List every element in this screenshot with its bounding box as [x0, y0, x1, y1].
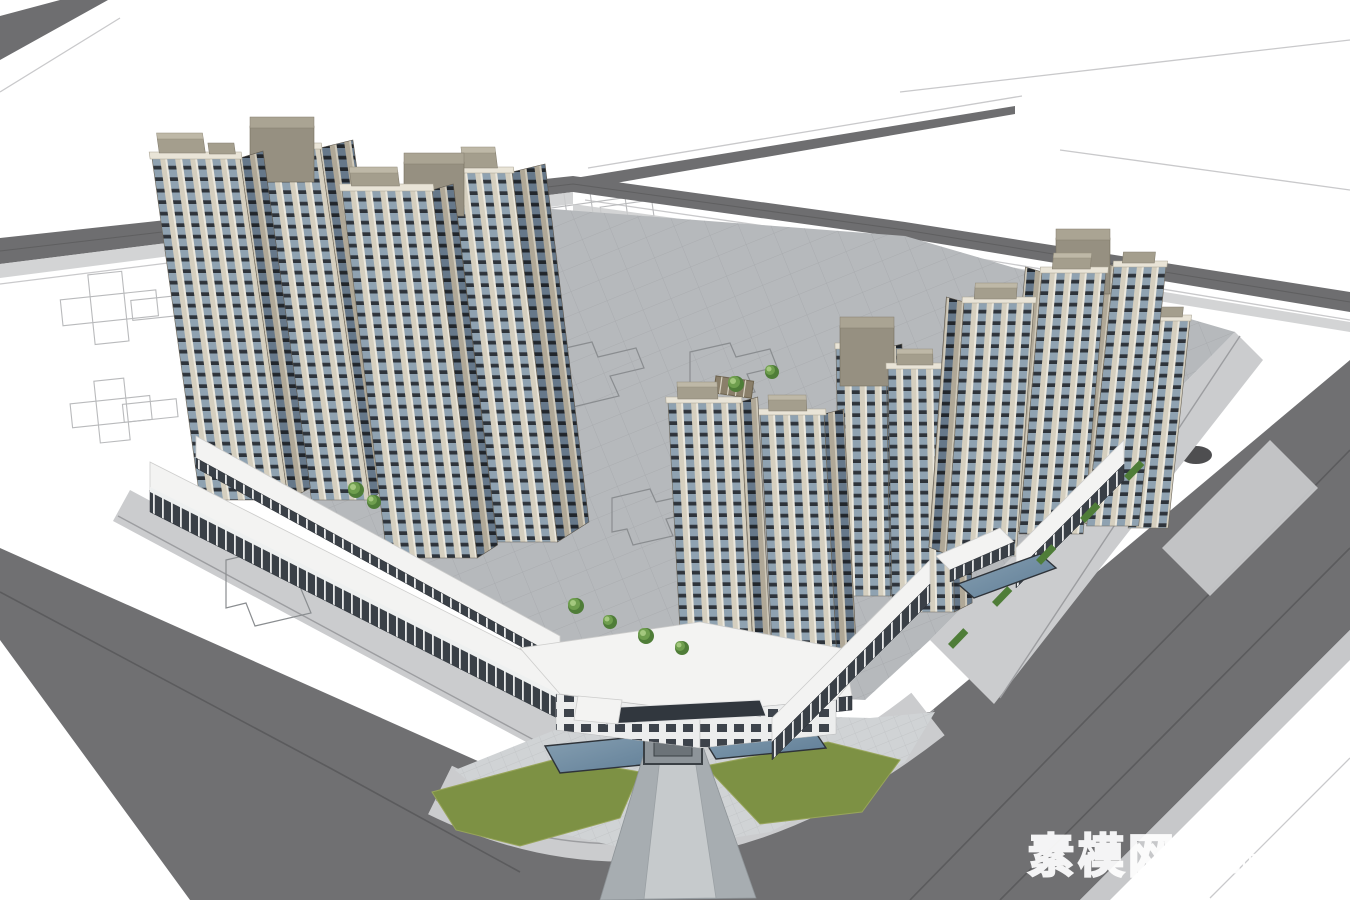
tower-c1 [665, 382, 772, 660]
roof-core-c [840, 317, 894, 386]
tree [603, 615, 617, 629]
tree [675, 641, 689, 655]
tree [638, 628, 654, 644]
tree [367, 495, 381, 509]
entrance-kiosk [574, 696, 622, 724]
tree [348, 482, 364, 498]
scene-svg: 素模网suuuum.com [0, 0, 1350, 900]
tree [728, 376, 744, 392]
tree [765, 365, 779, 379]
architectural-render: 素模网suuuum.com [0, 0, 1350, 900]
tree [568, 598, 584, 614]
